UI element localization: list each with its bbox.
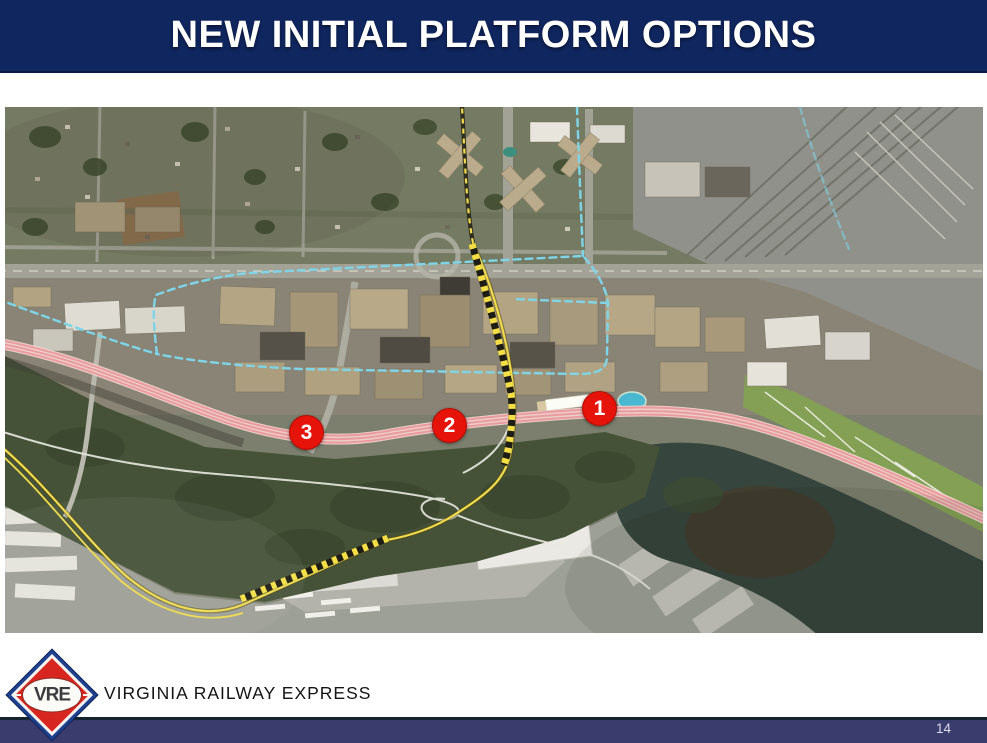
logo-oval: VRE <box>22 678 82 713</box>
map-marker-option-2: 2 <box>432 408 467 443</box>
page-number: 14 <box>936 721 951 736</box>
organization-name: VIRGINIA RAILWAY EXPRESS <box>104 683 371 704</box>
map-marker-option-1: 1 <box>582 391 617 426</box>
logo-text: VRE <box>34 684 70 706</box>
footer-bar <box>0 717 987 743</box>
logo-whisker-left <box>12 694 21 696</box>
presentation-slide: NEW INITIAL PLATFORM OPTIONS <box>0 0 987 743</box>
satellite-map <box>5 107 983 633</box>
marker-label: 2 <box>444 414 456 438</box>
map-marker-option-3: 3 <box>289 415 324 450</box>
marker-label: 3 <box>301 421 313 445</box>
title-banner: NEW INITIAL PLATFORM OPTIONS <box>0 0 987 73</box>
map-container: 1 2 3 <box>5 107 983 633</box>
vre-logo: VRE <box>6 649 98 741</box>
slide-title: NEW INITIAL PLATFORM OPTIONS <box>171 14 817 57</box>
logo-whisker-right <box>83 694 92 696</box>
marker-label: 1 <box>594 397 606 421</box>
